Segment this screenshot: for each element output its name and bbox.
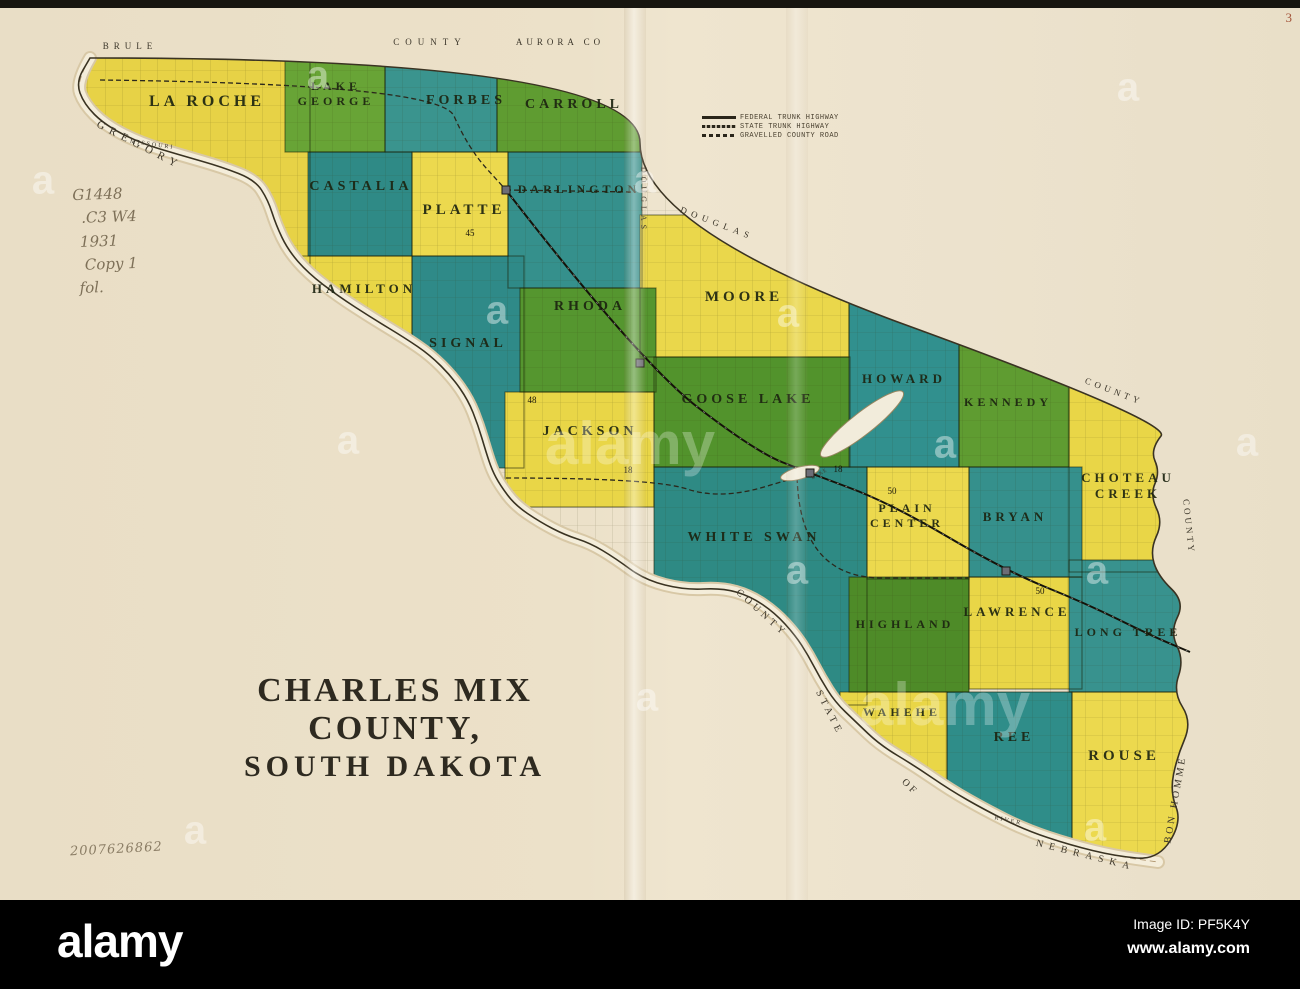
town-marker xyxy=(1002,567,1010,575)
legend-row-county: GRAVELLED COUNTY ROAD xyxy=(702,131,839,140)
road-legend: FEDERAL TRUNK HIGHWAY STATE TRUNK HIGHWA… xyxy=(702,113,839,140)
border-label-of: OF xyxy=(899,777,920,798)
legend-row-federal: FEDERAL TRUNK HIGHWAY xyxy=(702,113,839,122)
township-label: KENNEDY xyxy=(964,395,1052,409)
page-number: 3 xyxy=(1286,10,1293,26)
county-road-symbol xyxy=(702,134,736,137)
map-title: CHARLES MIX COUNTY, SOUTH DAKOTA xyxy=(165,672,625,784)
image-id-text: Image ID: PF5K4Y xyxy=(1127,916,1250,932)
route-number: 45 xyxy=(466,228,476,238)
map-title-line2: SOUTH DAKOTA xyxy=(165,750,625,784)
township-label: LA ROCHE xyxy=(149,93,265,110)
route-number: 50 xyxy=(1036,586,1046,596)
township-label: PLATTE xyxy=(423,202,506,218)
border-label-county: COUNTY xyxy=(393,37,467,47)
border-label-aurora-co: AURORA CO xyxy=(516,37,604,47)
township-label: HIGHLAND xyxy=(856,617,955,631)
map-title-line1: CHARLES MIX COUNTY, xyxy=(165,672,625,748)
alamy-url-text: www.alamy.com xyxy=(1127,940,1250,958)
route-number: 18 xyxy=(834,464,844,474)
catalog-note-line: .C3 W4 xyxy=(73,205,137,230)
watermark-footer-bar: alamy Image ID: PF5K4Y www.alamy.com xyxy=(0,900,1300,989)
town-marker xyxy=(502,186,510,194)
township-label: CASTALIA xyxy=(309,179,412,194)
township-label: LAWRENCE xyxy=(963,604,1070,619)
township-label: RHODA xyxy=(554,299,626,314)
route-number: 18 xyxy=(624,465,634,475)
legend-label: GRAVELLED COUNTY ROAD xyxy=(740,132,839,140)
township-label: REE xyxy=(994,730,1035,745)
township-label: CARROLL xyxy=(525,97,623,112)
township-label: FORBES xyxy=(426,93,506,108)
town-marker xyxy=(636,359,644,367)
township-label: WHITE SWAN xyxy=(688,530,821,545)
legend-label: FEDERAL TRUNK HIGHWAY xyxy=(740,114,839,122)
border-label-brule: BRULE xyxy=(103,41,158,51)
catalog-note-line: G1448 xyxy=(72,182,136,207)
scanned-map-page: { "page": { "corner_number": "3", "catal… xyxy=(0,0,1300,989)
township-label: HAMILTON xyxy=(312,281,416,296)
catalog-notes: G1448.C3 W41931Copy 1fol. xyxy=(72,182,140,300)
route-number: 50 xyxy=(888,486,898,496)
legend-label: STATE TRUNK HIGHWAY xyxy=(740,123,829,131)
border-label-douglas: DOUGLAS xyxy=(639,167,648,233)
township-label: GOOSE LAKE xyxy=(682,392,815,407)
township-label: WAHEHE xyxy=(863,705,941,719)
border-label-county: COUNTY xyxy=(1181,499,1197,555)
catalog-note-line: 1931 xyxy=(74,228,138,253)
catalog-note-line: fol. xyxy=(75,275,139,300)
township-label: PLAINCENTER xyxy=(870,501,944,530)
catalog-note-line: Copy 1 xyxy=(74,252,138,277)
township-label: HOWARD xyxy=(862,371,946,386)
township-label: DARLINGTON xyxy=(518,182,640,196)
federal-highway-symbol xyxy=(702,116,736,119)
township-label: MOORE xyxy=(705,289,783,305)
township-label: ROUSE xyxy=(1088,748,1160,764)
alamy-logo: alamy xyxy=(57,914,182,968)
township-label: SIGNAL xyxy=(429,336,507,351)
township-label: JACKSON xyxy=(543,424,638,439)
township-label: LONG TREE xyxy=(1075,625,1182,639)
township-label: CHOTEAUCREEK xyxy=(1081,470,1175,501)
township-label: BRYAN xyxy=(983,509,1048,524)
legend-row-state: STATE TRUNK HIGHWAY xyxy=(702,122,839,131)
route-number: 48 xyxy=(528,395,538,405)
state-highway-symbol xyxy=(702,125,736,128)
